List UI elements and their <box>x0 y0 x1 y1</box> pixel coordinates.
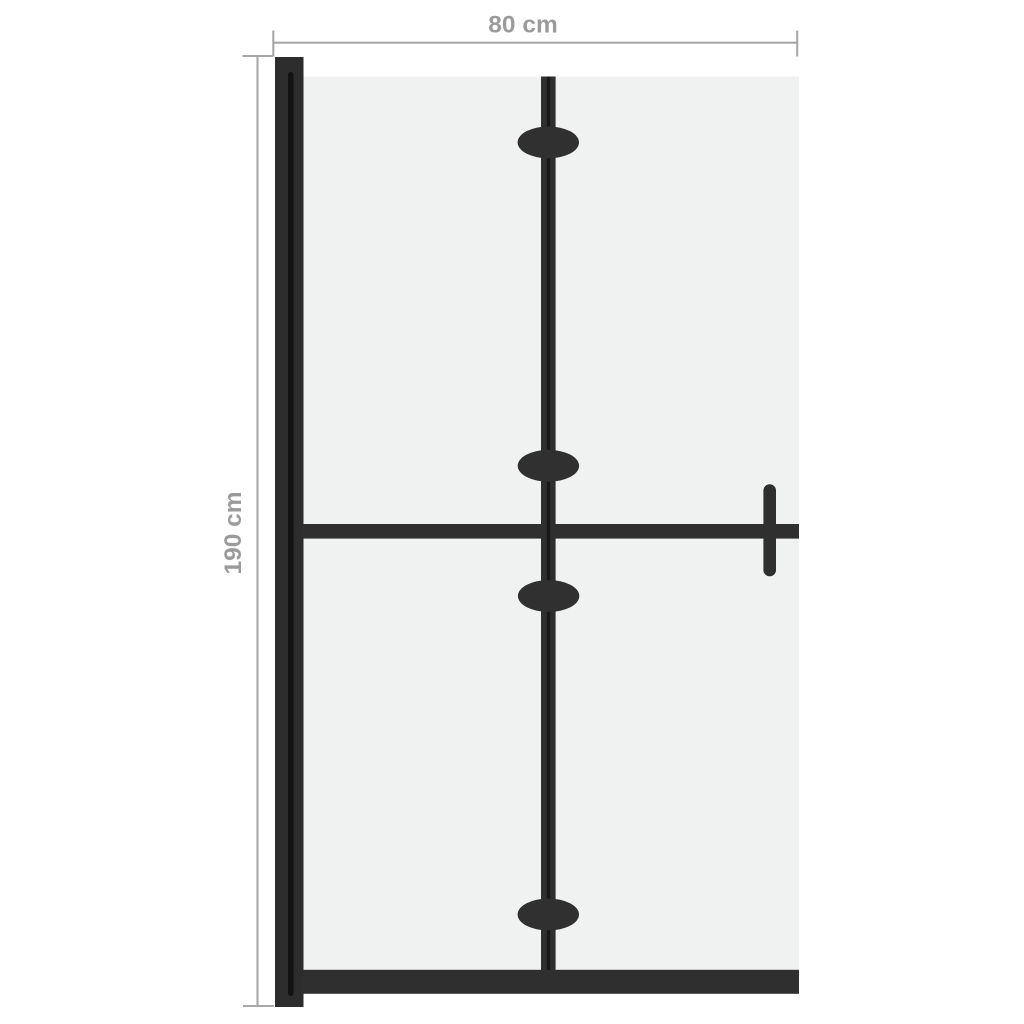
svg-text:190 cm: 190 cm <box>220 491 247 574</box>
svg-text:80 cm: 80 cm <box>488 12 557 39</box>
